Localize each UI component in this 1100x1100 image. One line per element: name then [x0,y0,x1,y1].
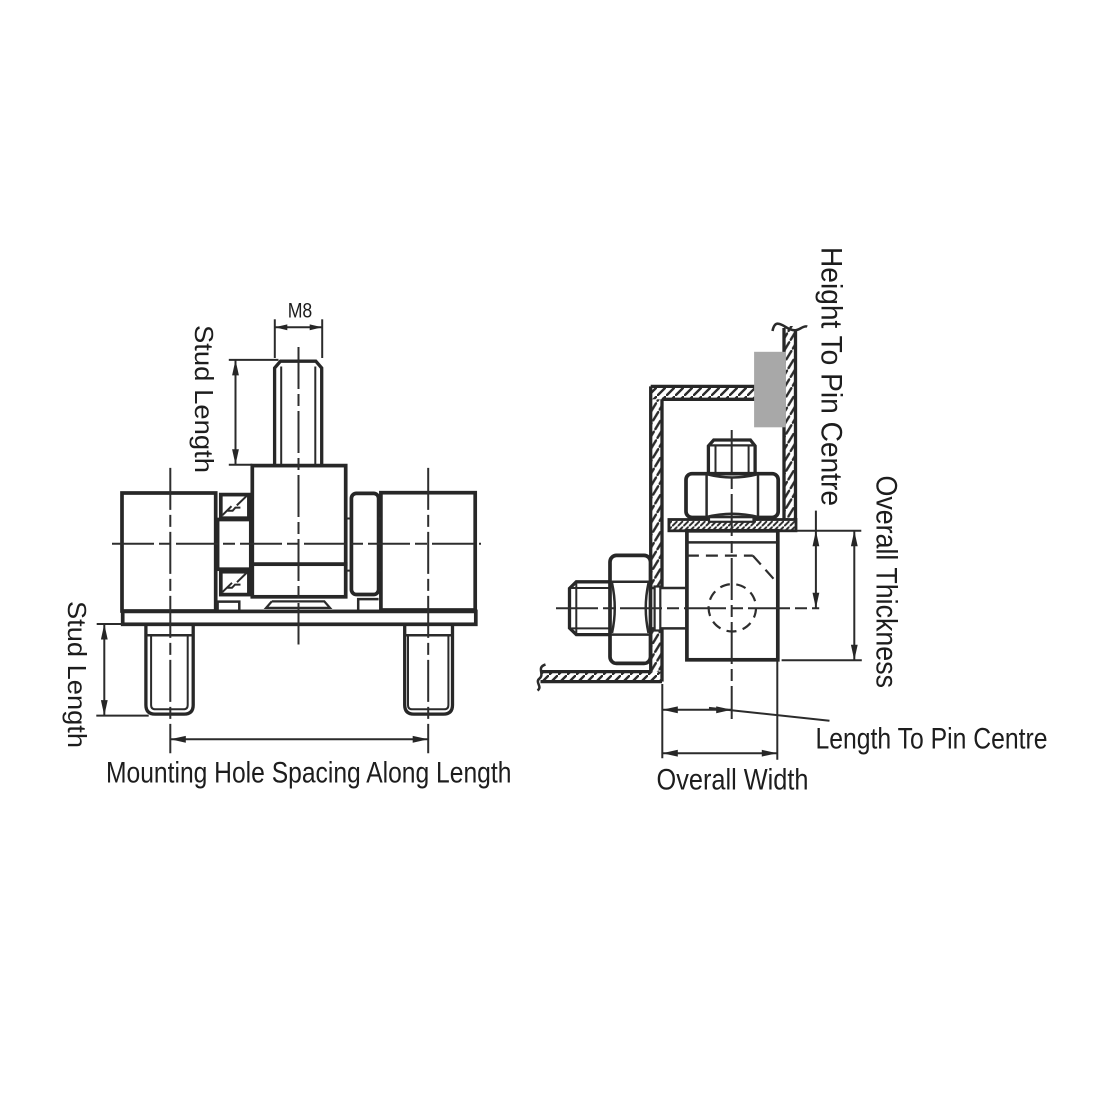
svg-text:Stud Length: Stud Length [189,325,219,473]
svg-text:M8: M8 [288,299,313,322]
svg-text:Overall Width: Overall Width [657,764,809,797]
svg-text:Height To Pin Centre: Height To Pin Centre [815,247,848,506]
svg-text:Stud Length: Stud Length [62,601,92,748]
svg-text:Overall Thickness: Overall Thickness [870,476,903,689]
svg-text:Mounting Hole Spacing Along Le: Mounting Hole Spacing Along Length [106,757,511,790]
svg-text:Length To Pin Centre: Length To Pin Centre [816,723,1048,756]
